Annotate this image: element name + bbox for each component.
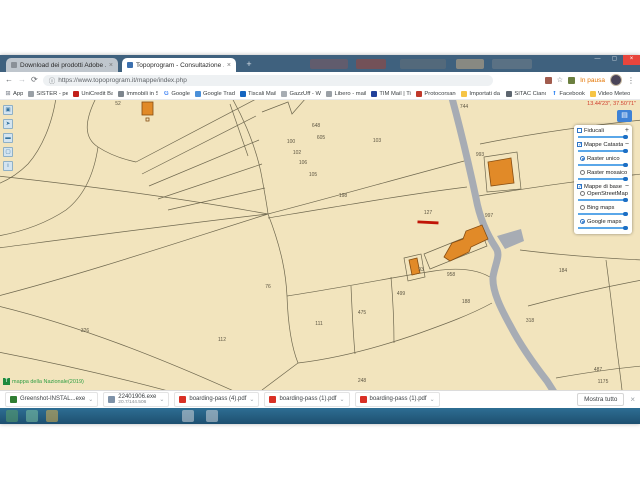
download-text: boarding-pass (4).pdf	[189, 396, 246, 402]
layer-row-bing-maps[interactable]: Bing maps	[577, 204, 629, 211]
address-bar-actions: ☆ In pausa ⋮	[545, 74, 635, 86]
bookmark-item-gazzuff-web-links[interactable]: GazzUff - Web Links	[281, 91, 321, 97]
download-item-boarding-pass-1-pdf[interactable]: boarding-pass (1).pdf⌄	[355, 392, 440, 407]
download-text: Greenshot-INSTAL...exe	[20, 396, 85, 402]
bookmark-label: Facebook	[559, 91, 584, 97]
taskbar-app-icon[interactable]	[26, 410, 38, 422]
bookmark-item-importati-da-ie[interactable]: Importati da IE	[461, 91, 501, 97]
site-info-icon[interactable]: ⓘ	[49, 75, 56, 85]
libero-icon	[326, 91, 332, 97]
close-tab-icon[interactable]: ×	[227, 62, 231, 69]
chevron-down-icon[interactable]: ⌄	[159, 396, 164, 403]
layers-icon: ▤	[621, 112, 628, 119]
download-filename: boarding-pass (1).pdf	[279, 396, 336, 402]
bookmark-label: App	[13, 91, 23, 97]
close-downloads-bar-icon[interactable]: ×	[630, 395, 635, 404]
window-controls: — ▢ ×	[589, 55, 640, 65]
download-item-22401906-exe[interactable]: 22401906.exe20.7/144.506⌄	[103, 392, 169, 407]
bookmark-star-icon[interactable]: ☆	[557, 76, 563, 84]
url-input[interactable]: ⓘ https://www.topoprogram.it/mappe/index…	[43, 75, 493, 86]
bookmark-item-video-meteo-oggi[interactable]: Video Meteo Oggi -	[590, 91, 630, 97]
download-item-greenshot-instal-exe[interactable]: Greenshot-INSTAL...exe⌄	[5, 392, 98, 407]
layer-row-mappe-catastali[interactable]: Mappe Catastali−	[577, 141, 629, 148]
tab-title: Download dei prodotti Adobe ...	[20, 62, 106, 69]
parcel-number: 100	[287, 139, 296, 145]
page-favicon	[11, 62, 17, 68]
parcel-numbers: 5264860510010210610510374419812799799393…	[81, 101, 609, 385]
layer-row-google-maps[interactable]: Google maps	[577, 218, 629, 225]
parcel-number: 499	[397, 291, 406, 297]
parcel-number: 76	[265, 284, 271, 290]
url-text: https://www.topoprogram.it/mappe/index.p…	[58, 77, 187, 84]
parcel-number: 487	[594, 367, 603, 373]
back-icon[interactable]: ←	[5, 76, 13, 84]
greenshot-file-icon	[10, 396, 17, 403]
measurement-line	[417, 220, 438, 224]
bookmark-item-unicredit-banca-co[interactable]: UniCredit Banca Co...	[73, 91, 113, 97]
layer-row-openstreetmap[interactable]: OpenStreetMap	[577, 190, 629, 197]
parcel-number: 52	[115, 101, 121, 107]
theme-blob	[492, 59, 532, 69]
radio-unchecked-icon[interactable]	[580, 205, 585, 210]
parcel-number: 102	[293, 150, 302, 156]
screenshot-icon[interactable]: ▣	[3, 105, 13, 115]
bookmark-label: SISTER - per visual	[36, 91, 68, 97]
downloads-bar: Greenshot-INSTAL...exe⌄22401906.exe20.7/…	[0, 390, 640, 408]
bookmark-item-[interactable]: »»	[635, 91, 640, 97]
chevron-down-icon[interactable]: ⌄	[88, 396, 93, 403]
download-item-boarding-pass-1-pdf[interactable]: boarding-pass (1).pdf⌄	[264, 392, 349, 407]
bookmark-label: Importati da IE	[469, 91, 501, 97]
road-stub-shape	[497, 229, 524, 249]
parcel-number: 106	[299, 160, 308, 166]
translate-icon	[195, 91, 201, 97]
bookmark-label: Tiscali Mail	[248, 91, 276, 97]
layer-label: Mappe di base	[584, 184, 623, 190]
close-tab-icon[interactable]: ×	[109, 62, 113, 69]
taskbar-app-icon[interactable]	[182, 410, 194, 422]
bookmark-label: TIM Mail | TimLt_I I	[379, 91, 411, 97]
taskbar-app-icon[interactable]	[46, 410, 58, 422]
bookmark-label: GazzUff - Web Links	[289, 91, 321, 97]
windows-taskbar[interactable]	[0, 408, 640, 424]
chevron-down-icon[interactable]: ⌄	[430, 396, 435, 403]
download-filename: boarding-pass (1).pdf	[370, 396, 427, 402]
building-shape	[142, 102, 153, 115]
layer-label: Mappe Catastali	[584, 142, 623, 148]
page-favicon	[127, 62, 133, 68]
slider-knob[interactable]	[623, 226, 628, 231]
tab-topoprogram[interactable]: Topoprogram - Consultazione ... ×	[122, 58, 236, 72]
layer-label: Bing maps	[587, 205, 629, 211]
gazzuff-icon	[281, 91, 287, 97]
collapse-icon[interactable]: −	[625, 142, 629, 148]
download-filename: boarding-pass (4).pdf	[189, 396, 246, 402]
parcel-number: 326	[81, 328, 90, 334]
parcel-number: 997	[485, 213, 494, 219]
collapse-icon[interactable]: −	[625, 184, 629, 190]
parcel-number: 105	[309, 172, 318, 178]
parcel-number: 127	[424, 210, 433, 216]
tiscali-icon	[240, 91, 246, 97]
chevron-down-icon[interactable]: ⌄	[339, 396, 344, 403]
bookmark-item-tim-mail-timlt-i-i[interactable]: TIM Mail | TimLt_I I	[371, 91, 411, 97]
opacity-slider[interactable]	[578, 225, 628, 231]
parcel-number: 184	[559, 268, 568, 274]
building-shape	[488, 158, 514, 186]
attribution-text: mappa della Nazionale(2019)	[12, 379, 84, 385]
download-text: 22401906.exe20.7/144.506	[118, 394, 156, 405]
parcel-number: 198	[339, 193, 348, 199]
taskbar-app-icon[interactable]	[206, 410, 218, 422]
map-viewport[interactable]: 5264860510010210610510374419812799799393…	[0, 100, 640, 390]
download-text: boarding-pass (1).pdf	[279, 396, 336, 402]
layer-row-fiducali[interactable]: Fiducali+	[577, 127, 629, 134]
slider-knob[interactable]	[623, 163, 628, 168]
bookmark-item-immobili-in-sicilia[interactable]: Immobili in Sicilia	[118, 91, 158, 97]
bookmark-label: Google	[171, 91, 190, 97]
forward-icon[interactable]: →	[18, 76, 26, 84]
address-bar: ← → ⟳ ⓘ https://www.topoprogram.it/mappe…	[0, 72, 640, 88]
layer-row-raster-mosaico[interactable]: Raster mosaico	[577, 169, 629, 176]
theme-blob	[356, 59, 386, 69]
tab-adobe-downloads[interactable]: Download dei prodotti Adobe ... ×	[6, 58, 118, 72]
bookmark-item-protocorsancanave-it[interactable]: Protocorsancanave.it	[416, 91, 456, 97]
bookmark-label: Immobili in Sicilia	[126, 91, 158, 97]
refresh-icon[interactable]: ⟳	[31, 76, 38, 84]
theme-blob	[400, 59, 446, 69]
maximize-button[interactable]: ▢	[606, 55, 623, 65]
parcel-number: 111	[315, 321, 323, 327]
pdf-file-icon	[360, 396, 367, 403]
taskbar-app-icon[interactable]	[6, 410, 18, 422]
map-attribution: T mappa della Nazionale(2019)	[3, 378, 84, 385]
new-tab-button[interactable]: +	[244, 59, 254, 69]
slider-track	[578, 164, 626, 166]
slider-knob[interactable]	[623, 149, 628, 154]
bookmark-label: Video Meteo Oggi -	[598, 91, 630, 97]
layer-label: Fiducali	[584, 128, 623, 134]
theme-blob	[310, 59, 348, 69]
folder-icon	[461, 91, 467, 97]
slider-track	[578, 199, 626, 201]
extension-icon[interactable]	[568, 77, 575, 84]
overflow-chevrons-icon: »	[635, 91, 640, 97]
bookmark-item-sitac-cianciana[interactable]: SITAC Cianciana	[506, 91, 546, 97]
slider-track	[578, 178, 626, 180]
parcel-number: 188	[462, 299, 471, 305]
slider-track	[578, 150, 626, 152]
slider-track	[578, 213, 626, 215]
opacity-slider[interactable]	[578, 197, 628, 203]
downloads-bar-right: Mostra tutto ×	[577, 393, 635, 406]
cursor-coordinates: 13.44'23", 37.50'71"	[587, 101, 636, 107]
layers-panel: Fiducali+Mappe Catastali−Raster unicoRas…	[574, 125, 632, 234]
extension-icon[interactable]	[545, 77, 552, 84]
radio-unchecked-icon[interactable]	[580, 170, 585, 175]
pdf-file-icon	[269, 396, 276, 403]
radio-unchecked-icon[interactable]	[580, 191, 585, 196]
checkbox-unchecked-icon[interactable]	[577, 128, 582, 133]
parcel-number: 605	[317, 135, 326, 141]
parcel-number: 93	[418, 267, 424, 273]
bookmark-label: SITAC Cianciana	[514, 91, 546, 97]
building-shape	[146, 118, 149, 121]
bookmark-item-facebook[interactable]: fFacebook	[551, 91, 584, 97]
tab-bar: Download dei prodotti Adobe ... × Topopr…	[0, 55, 640, 72]
sister-icon	[28, 91, 34, 97]
slider-knob[interactable]	[623, 135, 628, 140]
opacity-slider[interactable]	[578, 148, 628, 154]
protoco-icon	[416, 91, 422, 97]
bookmark-item-google[interactable]: GGoogle	[163, 91, 190, 97]
bookmarks-bar: ⊞AppSISTER - per visualUniCredit Banca C…	[0, 88, 640, 100]
bookmark-item-google-traduttore[interactable]: Google Traduttore	[195, 91, 235, 97]
download-item-boarding-pass-4-pdf[interactable]: boarding-pass (4).pdf⌄	[174, 392, 259, 407]
bookmark-label: Libero - mail	[334, 91, 366, 97]
slider-track	[578, 136, 626, 138]
pointer-icon[interactable]: ➤	[3, 119, 13, 129]
layer-row-mappe-di-base[interactable]: Mappe di base−	[577, 183, 629, 190]
pdf-file-icon	[179, 396, 186, 403]
checkbox-checked-icon[interactable]	[577, 184, 582, 189]
bookmark-item-app[interactable]: ⊞App	[5, 91, 23, 97]
immobili-icon	[118, 91, 124, 97]
parcel-number: 744	[460, 104, 469, 110]
parcel-number: 475	[358, 310, 367, 316]
checkbox-checked-icon[interactable]	[577, 142, 582, 147]
chevron-down-icon[interactable]: ⌄	[249, 396, 254, 403]
parcel-number: 958	[447, 272, 456, 278]
parcel-number: 648	[312, 123, 321, 129]
expand-icon[interactable]: +	[625, 128, 629, 134]
cadastral-map-canvas[interactable]: 5264860510010210610510374419812799799393…	[0, 100, 640, 390]
parcel-number: 248	[358, 378, 367, 384]
layer-label: Raster unico	[587, 156, 629, 162]
parcel-number: 993	[476, 152, 485, 158]
radio-checked-icon[interactable]	[580, 219, 585, 224]
measure-icon[interactable]: ▬	[3, 133, 13, 143]
browser-window: Download dei prodotti Adobe ... × Topopr…	[0, 55, 640, 424]
slider-knob[interactable]	[623, 212, 628, 217]
sync-paused-button[interactable]: In pausa	[580, 77, 605, 84]
parcel-boundaries	[0, 100, 640, 390]
theme-blob	[456, 59, 484, 69]
opacity-slider[interactable]	[578, 176, 628, 182]
layer-label: Raster mosaico	[587, 170, 629, 176]
layer-label: OpenStreetMap	[587, 191, 629, 197]
tim-icon	[371, 91, 377, 97]
radio-checked-icon[interactable]	[580, 156, 585, 161]
topoprogram-logo: T	[3, 378, 10, 385]
sitac-icon	[506, 91, 512, 97]
info-icon[interactable]: i	[3, 161, 13, 171]
map-toolbar: ▣➤▬▢i	[3, 105, 13, 171]
unicredit-icon	[73, 91, 79, 97]
opacity-slider[interactable]	[578, 162, 628, 168]
slider-knob[interactable]	[623, 198, 628, 203]
download-text: boarding-pass (1).pdf	[370, 396, 427, 402]
tab-title: Topoprogram - Consultazione ...	[136, 62, 224, 69]
parcel-number: 112	[218, 337, 226, 343]
bookmark-label: UniCredit Banca Co...	[81, 91, 113, 97]
layers-button[interactable]: ▤	[617, 110, 632, 122]
slider-track	[578, 227, 626, 229]
area-icon[interactable]: ▢	[3, 147, 13, 157]
menu-dots-icon[interactable]: ⋮	[627, 76, 635, 85]
parcel-number: 1175	[598, 379, 609, 385]
bookmark-item-libero-mail[interactable]: Libero - mail	[326, 91, 366, 97]
opacity-slider[interactable]	[578, 134, 628, 140]
exe-file-icon	[108, 396, 115, 403]
opacity-slider[interactable]	[578, 211, 628, 217]
bookmark-label: Protocorsancanave.it	[424, 91, 456, 97]
folder-icon	[590, 91, 596, 97]
show-all-downloads-button[interactable]: Mostra tutto	[577, 393, 624, 406]
close-window-button[interactable]: ×	[623, 55, 640, 65]
bookmark-item-tiscali-mail[interactable]: Tiscali Mail	[240, 91, 276, 97]
layer-label: Google maps	[587, 219, 629, 225]
profile-avatar[interactable]	[610, 74, 622, 86]
bookmark-label: Google Traduttore	[203, 91, 235, 97]
google-icon: G	[163, 91, 169, 97]
download-items: Greenshot-INSTAL...exe⌄22401906.exe20.7/…	[5, 392, 440, 407]
slider-knob[interactable]	[623, 177, 628, 182]
download-filename: Greenshot-INSTAL...exe	[20, 396, 85, 402]
apps-grid-icon: ⊞	[5, 91, 11, 97]
layer-row-raster-unico[interactable]: Raster unico	[577, 155, 629, 162]
parcel-number: 103	[373, 138, 382, 144]
facebook-icon: f	[551, 91, 557, 97]
download-progress: 20.7/144.506	[118, 400, 156, 405]
bookmark-item-sister-per-visual[interactable]: SISTER - per visual	[28, 91, 68, 97]
minimize-button[interactable]: —	[589, 55, 606, 65]
parcel-number: 318	[526, 318, 535, 324]
